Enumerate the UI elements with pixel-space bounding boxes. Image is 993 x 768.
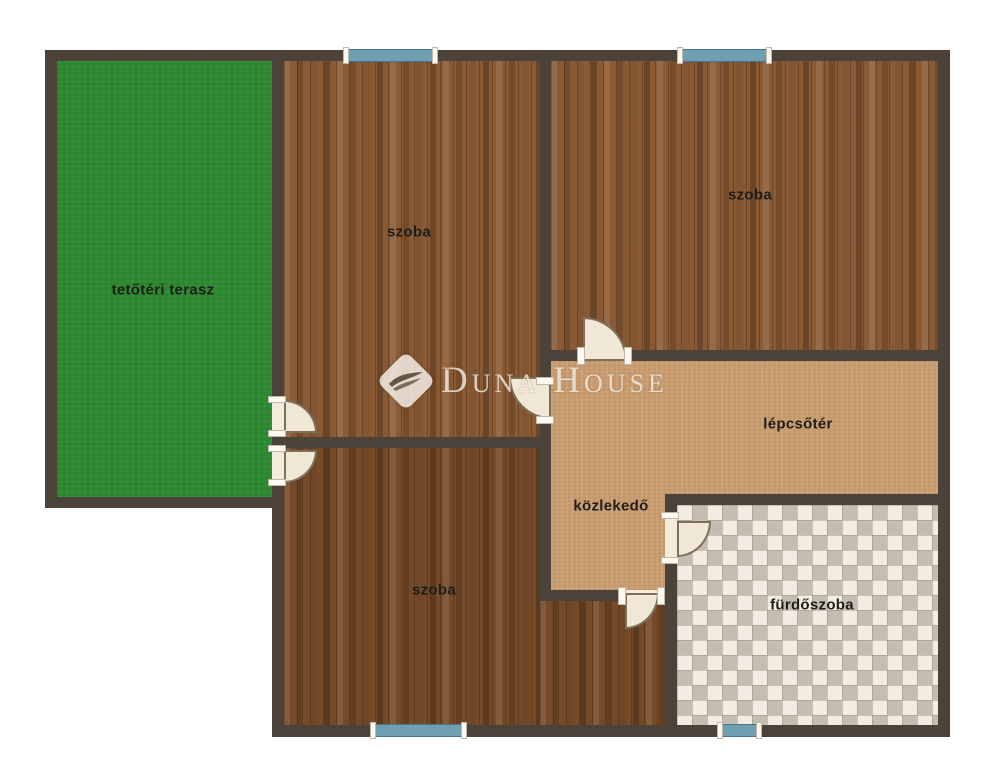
room-label-bedroom-top-right: szoba: [728, 187, 772, 204]
room-label-stairwell: lépcsőtér: [763, 416, 832, 433]
door-jamb: [661, 512, 679, 519]
window-sill: [370, 722, 376, 739]
door-threshold: [272, 402, 284, 432]
terrace-floor: [57, 61, 272, 497]
wall-hallway-bottom-left: [540, 590, 625, 601]
door-threshold: [272, 451, 284, 481]
floor-plan: tetőtéri terasz szoba szoba szoba lépcső…: [0, 0, 993, 768]
window-sill: [432, 47, 438, 64]
logo-text: Duna House®: [441, 352, 450, 410]
logo-wave-icon: [387, 370, 425, 392]
wall-bathroom-left-lower: [665, 558, 677, 737]
dunahouse-logo: Duna House®: [383, 352, 713, 410]
wall-top: [45, 50, 950, 61]
window-sill: [343, 47, 349, 64]
door-jamb: [268, 396, 286, 403]
bathroom-floor: [677, 505, 938, 725]
window-icon: [722, 724, 757, 737]
window-sill: [461, 722, 467, 739]
door-jamb: [618, 587, 626, 605]
room-label-bedroom-bottom: szoba: [412, 582, 456, 599]
door-jamb: [657, 587, 665, 605]
window-sill: [717, 722, 723, 739]
wall-left-lower: [272, 481, 284, 737]
window-icon: [375, 724, 462, 737]
wall-left-upper: [272, 50, 284, 402]
window-sill: [766, 47, 772, 64]
wall-right: [938, 50, 950, 737]
wall-center-vertical-upper: [540, 61, 551, 385]
door-jamb: [268, 445, 286, 452]
room-label-terrace: tetőtéri terasz: [112, 282, 215, 299]
door-threshold: [665, 519, 677, 558]
wall-bedroom-divider: [272, 437, 551, 448]
room-label-hallway: közlekedő: [573, 498, 648, 515]
registered-mark: ®: [441, 359, 450, 373]
door-jamb: [661, 557, 679, 564]
bedroom-top-right-floor: [551, 61, 938, 350]
window-icon: [682, 49, 767, 62]
window-icon: [348, 49, 433, 62]
room-label-bathroom: fürdőszoba: [770, 597, 854, 614]
window-sill: [756, 722, 762, 739]
window-sill: [677, 47, 683, 64]
wall-terrace-bottom: [45, 497, 284, 508]
door-jamb: [536, 416, 554, 424]
door-jamb: [268, 430, 286, 437]
wall-bathroom-top: [665, 494, 950, 505]
room-label-bedroom-top-left: szoba: [387, 224, 431, 241]
door-jamb: [268, 479, 286, 486]
wall-terrace-left: [45, 50, 57, 508]
